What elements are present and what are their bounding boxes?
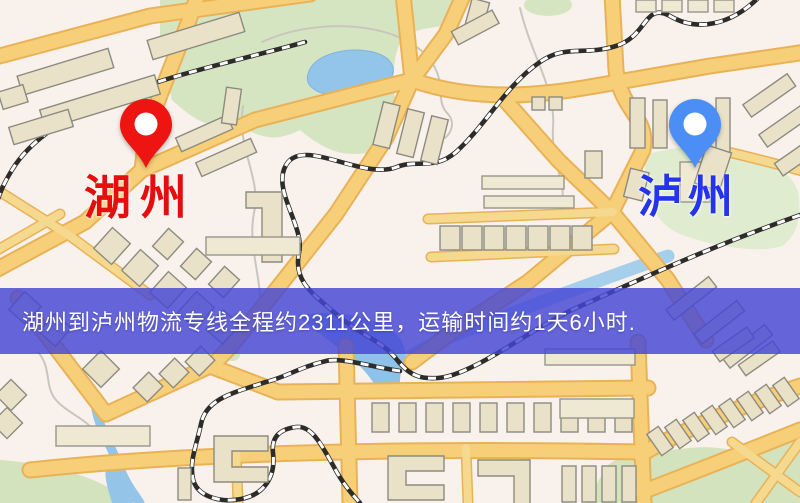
- destination-pin-hole: [684, 113, 707, 136]
- destination-city-label: 泸州: [638, 175, 738, 220]
- map-canvas[interactable]: [0, 0, 800, 503]
- origin-pin-hole: [135, 113, 158, 136]
- route-info-banner: 湖州到泸州物流专线全程约2311公里，运输时间约1天6小时.: [0, 288, 800, 354]
- origin-city-label: 湖州: [84, 176, 196, 223]
- map-screenshot: 湖州 泸州 湖州到泸州物流专线全程约2311公里，运输时间约1天6小时.: [0, 0, 800, 503]
- route-info-text: 湖州到泸州物流专线全程约2311公里，运输时间约1天6小时.: [0, 305, 636, 337]
